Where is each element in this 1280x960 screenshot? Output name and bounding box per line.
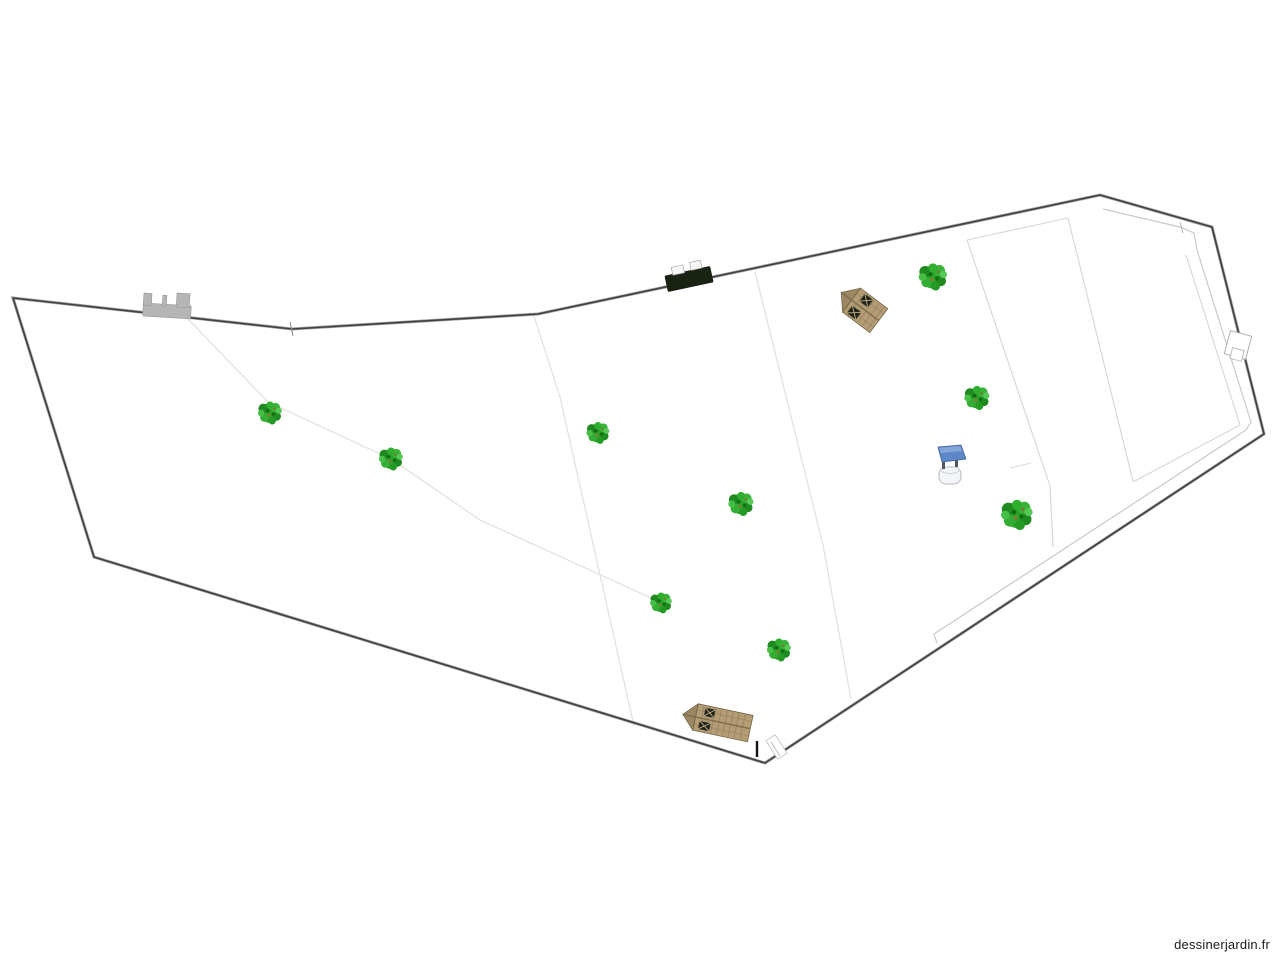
tree-icon[interactable]	[728, 492, 753, 516]
garden-plan-canvas[interactable]	[0, 0, 1280, 960]
long-shed-icon[interactable]	[680, 701, 753, 742]
garden-planner-stage[interactable]: dessinerjardin.fr	[0, 0, 1280, 960]
tree-icon[interactable]	[1001, 500, 1033, 530]
plot-boundary-halo	[13, 195, 1264, 763]
divider-a[interactable]	[533, 313, 634, 726]
small-shed-icon[interactable]	[832, 280, 888, 332]
entrance-gate-icon[interactable]	[143, 291, 192, 319]
tree-icon[interactable]	[964, 386, 989, 410]
tree-icon[interactable]	[379, 447, 403, 470]
tree-icon[interactable]	[767, 638, 791, 661]
tree-icon[interactable]	[650, 593, 672, 614]
field-gate-icon[interactable]	[663, 259, 713, 292]
well-stub[interactable]	[1010, 463, 1031, 468]
right-boundary-opening-inner[interactable]	[1230, 348, 1244, 362]
court-bottom-edge[interactable]	[1133, 425, 1240, 482]
hedge-diagonal[interactable]	[187, 318, 660, 602]
band-right-edge[interactable]	[1068, 218, 1133, 481]
well-icon[interactable]	[938, 445, 966, 484]
corner-opening[interactable]	[766, 735, 787, 759]
watermark: dessinerjardin.fr	[1174, 937, 1270, 952]
inner-outline[interactable]	[934, 209, 1251, 643]
plot-boundary-line[interactable]	[13, 195, 1264, 763]
tree-icon[interactable]	[258, 401, 282, 424]
divider-lines	[187, 209, 1251, 726]
plot-boundary[interactable]	[13, 195, 1264, 763]
divider-b[interactable]	[755, 272, 851, 699]
tree-icon[interactable]	[586, 422, 609, 444]
tree-icon[interactable]	[919, 263, 947, 290]
